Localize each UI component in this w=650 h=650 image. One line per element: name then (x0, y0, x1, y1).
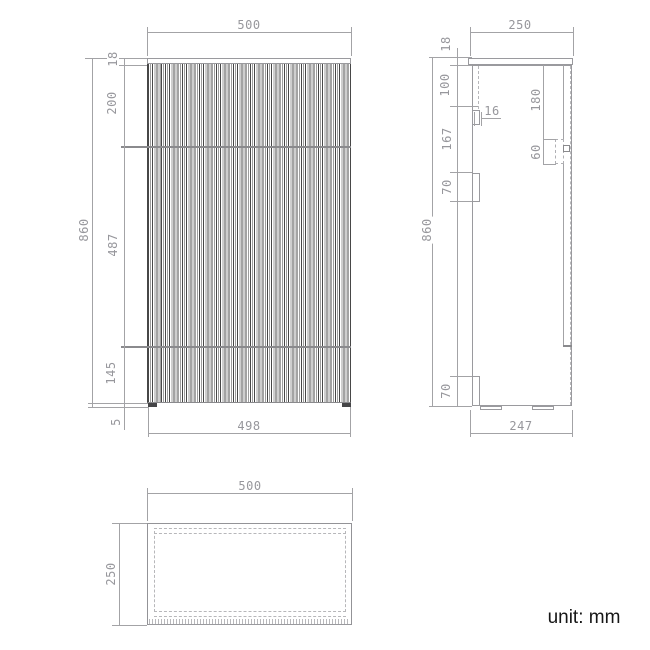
plan-view: 500 250 (0, 0, 650, 650)
hidden-edge-line (154, 611, 346, 612)
fluted-front-edge (149, 619, 350, 625)
dimension-line (119, 523, 120, 625)
technical-drawing: 500 860 18 200 487 145 5 498 (0, 0, 650, 650)
plan-dim-depth: 250 (105, 560, 117, 587)
extension-line (147, 488, 148, 521)
cabinet-plan-outline (147, 523, 352, 625)
unit-note: unit: mm (548, 607, 621, 629)
hidden-edge-line (154, 616, 346, 617)
dimension-line (147, 493, 352, 494)
extension-line (352, 488, 353, 521)
extension-line (112, 523, 147, 524)
hidden-edge-line (345, 531, 346, 612)
extension-line (112, 625, 147, 626)
hidden-edge-line (154, 531, 155, 612)
hidden-edge-line (154, 528, 346, 529)
plan-dim-width: 500 (236, 480, 263, 492)
hidden-edge-line (154, 533, 346, 534)
